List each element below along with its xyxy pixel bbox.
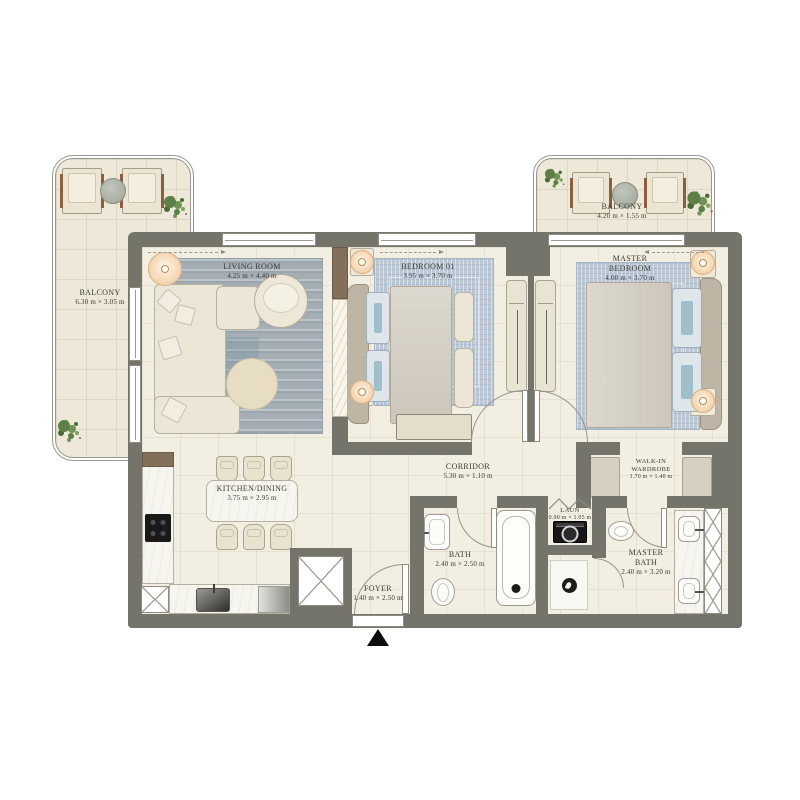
plant-icon xyxy=(164,196,176,208)
wall-corridor-south-d xyxy=(667,496,742,508)
closet-bedroom01 xyxy=(506,280,527,392)
room-name: BATH xyxy=(435,550,484,560)
window-master-bedroom xyxy=(548,234,685,246)
floor-lamp xyxy=(148,252,182,286)
entrance-arrow-icon xyxy=(367,629,389,646)
dining-chair xyxy=(216,524,238,550)
washing-machine-icon xyxy=(553,521,587,543)
fridge xyxy=(258,586,290,613)
room-dims: 4.20 m × 1.55 m xyxy=(597,212,646,221)
wall-bath-west xyxy=(410,496,424,614)
door-leaf-master-bedroom xyxy=(534,390,540,442)
entrance-threshold xyxy=(352,615,404,627)
room-dims: 1.70 m × 1.40 m xyxy=(623,474,679,482)
curtain-track-icon xyxy=(148,252,218,253)
wall-right xyxy=(728,232,742,628)
wall-master-south-a xyxy=(591,442,620,455)
coffee-table xyxy=(226,358,278,410)
door-leaf-bath xyxy=(491,508,497,548)
wardrobe-unit xyxy=(682,457,712,498)
room-dims: 4.00 m × 3.70 m xyxy=(598,274,662,283)
curtain-track-icon xyxy=(380,252,436,253)
wall-corridor-south-c xyxy=(606,496,627,508)
door-leaf-master-bath xyxy=(661,508,667,548)
shaft-x-icon xyxy=(298,556,344,606)
room-dims: 5.30 m × 1.10 m xyxy=(443,472,492,481)
bed-bench xyxy=(454,292,474,342)
tv-wall-marble xyxy=(332,299,348,417)
bedside-lamp xyxy=(350,380,374,404)
room-dims: 2.40 m × 2.50 m xyxy=(435,560,484,569)
plant-icon xyxy=(545,169,555,179)
bed-pillow xyxy=(366,292,390,344)
room-name: BEDROOM 01 xyxy=(401,262,455,272)
room-name: MASTER BEDROOM xyxy=(598,254,662,274)
label-balcony-left: BALCONY 6.30 m × 3.05 m xyxy=(75,288,124,307)
room-name: LIVING ROOM xyxy=(223,262,280,272)
plant-icon xyxy=(687,191,700,204)
bath-basin xyxy=(424,514,450,550)
label-bath: BATH 2.40 m × 2.50 m xyxy=(435,550,484,569)
wall-laundry-east xyxy=(592,496,606,558)
room-name: BALCONY xyxy=(597,202,646,212)
wall-laundry-south xyxy=(548,545,592,555)
room-dims: 1.40 m × 2.50 m xyxy=(353,594,402,603)
label-laundry: LAUN 0.90 m × 1.05 m xyxy=(549,507,592,523)
sofa-cushion xyxy=(216,286,260,330)
dining-chair xyxy=(270,456,292,482)
label-bedroom01: BEDROOM 01 3.95 m × 3.70 m xyxy=(401,262,455,281)
shaft-x-icon xyxy=(141,586,169,613)
room-name: FOYER xyxy=(353,584,402,594)
dining-chair xyxy=(270,524,292,550)
plant-icon xyxy=(58,420,70,432)
wardrobe-unit xyxy=(590,457,620,498)
window-bedroom01 xyxy=(378,233,476,246)
room-dims: 4.25 m × 4.40 m xyxy=(223,272,280,281)
balcony-armchair xyxy=(122,168,162,214)
floor-plan: BALCONY 6.30 m × 3.05 m BALCONY 4.20 m ×… xyxy=(0,0,800,800)
room-name: LAUN xyxy=(549,507,592,515)
label-living-room: LIVING ROOM 4.25 m × 4.40 m xyxy=(223,262,280,281)
bed-blanket xyxy=(586,282,672,428)
closet-master xyxy=(535,280,556,392)
label-kitchen-dining: KITCHEN/DINING 3.75 m × 2.95 m xyxy=(217,484,288,503)
kitchen-sink xyxy=(196,588,230,612)
vanity-basin xyxy=(678,516,700,542)
vanity-basin xyxy=(678,578,700,604)
dining-chair xyxy=(216,456,238,482)
balcony-armchair xyxy=(646,172,684,214)
balcony-armchair xyxy=(62,168,102,214)
bed-bench xyxy=(454,348,474,408)
bed-pillow xyxy=(672,288,702,348)
window-living-west xyxy=(129,287,141,361)
door-leaf-entrance xyxy=(402,564,409,614)
bedside-lamp xyxy=(691,251,715,275)
label-master-bedroom: MASTER BEDROOM 4.00 m × 3.70 m xyxy=(598,254,662,283)
room-name: KITCHEN/DINING xyxy=(217,484,288,494)
label-corridor: CORRIDOR 5.30 m × 1.10 m xyxy=(443,462,492,481)
bed-blanket xyxy=(390,286,452,424)
shower-drain-icon xyxy=(562,578,577,593)
label-foyer: FOYER 1.40 m × 2.50 m xyxy=(353,584,402,603)
door-leaf-bedroom01 xyxy=(522,390,528,442)
armchair xyxy=(254,274,308,328)
label-balcony-right: BALCONY 4.20 m × 1.55 m xyxy=(597,202,646,221)
bedside-lamp xyxy=(691,389,715,413)
bathtub xyxy=(496,510,536,606)
wall-bedroom01-south xyxy=(332,442,472,455)
room-name: WALK-IN WARDROBE xyxy=(623,458,679,474)
shaft-x-icon xyxy=(704,508,722,614)
room-dims: 0.90 m × 1.05 m xyxy=(549,515,592,523)
wall-bottom xyxy=(128,614,742,628)
tv-wall-wood xyxy=(332,247,348,299)
dining-chair xyxy=(243,524,265,550)
label-walk-in-wardrobe: WALK-IN WARDROBE 1.70 m × 1.40 m xyxy=(623,458,679,482)
dining-chair xyxy=(243,456,265,482)
room-name: BALCONY xyxy=(75,288,124,298)
kitchen-cabinet xyxy=(142,452,174,467)
bedside-lamp xyxy=(350,250,374,274)
room-dims: 2.40 m × 3.20 m xyxy=(621,568,671,577)
room-name: CORRIDOR xyxy=(443,462,492,472)
balcony-table xyxy=(100,178,126,204)
toilet xyxy=(431,578,455,606)
cooktop-icon xyxy=(145,514,171,542)
tv-wall-lower xyxy=(332,417,348,442)
room-dims: 6.30 m × 3.05 m xyxy=(75,298,124,307)
dresser xyxy=(396,414,472,440)
window-living-west xyxy=(129,365,141,443)
label-master-bath: MASTER BATH 2.40 m × 3.20 m xyxy=(621,548,671,577)
room-name: MASTER BATH xyxy=(621,548,671,568)
window-living-room xyxy=(222,233,316,246)
room-dims: 3.75 m × 2.95 m xyxy=(217,494,288,503)
curtain-track-icon xyxy=(652,252,704,253)
wall-bath-east xyxy=(536,496,548,614)
room-dims: 3.95 m × 3.70 m xyxy=(401,272,455,281)
